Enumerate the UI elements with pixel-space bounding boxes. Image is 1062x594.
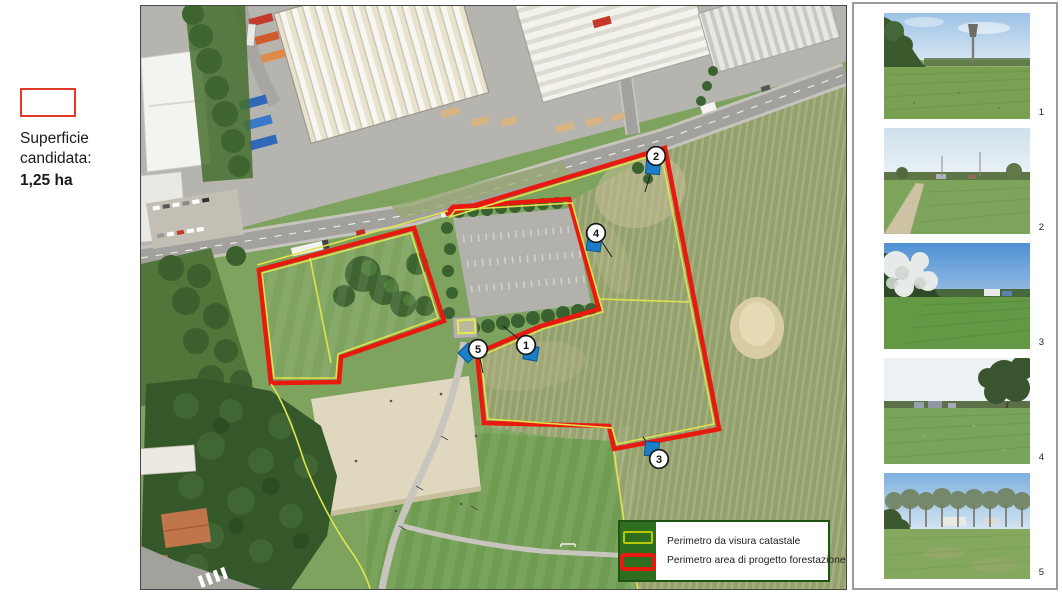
bare-soil-core [739,302,775,346]
marker-number: 4 [593,228,600,240]
slide: Superficie candidata: 1,25 ha [0,0,1062,594]
legend-swatch-panel [620,522,656,580]
photo-1-image [884,13,1030,119]
legend-item-catastale: Perimetro da visura catastale [667,536,846,547]
aerial-imagery: 12345 [141,6,846,589]
photo-3-image [884,243,1030,349]
photo-2-image [884,128,1030,234]
cadastral-box [458,320,476,334]
legend-item-forestazione: Perimetro area di progetto forestazione [667,555,846,566]
photo-4-number: 4 [1039,452,1044,463]
photo-2-number: 2 [1039,222,1044,233]
marker-number: 5 [475,344,481,356]
marker-number: 1 [523,340,529,352]
candidate-area-swatch [20,88,76,117]
legend-labels: Perimetro da visura catastale Perimetro … [656,522,846,580]
annotation-value: 1,25 ha [20,172,135,190]
map-legend: Perimetro da visura catastale Perimetro … [618,520,830,582]
marker-number: 2 [653,151,659,163]
photo-5: 5 [884,473,1030,579]
photo-1-number: 1 [1039,107,1044,118]
parking-lot [453,208,591,318]
photo-5-image [884,473,1030,579]
aerial-map: 12345 Perimetro da visura catastale Peri… [140,5,847,590]
cadastral-swatch [623,531,653,544]
photo-3-number: 3 [1039,337,1044,348]
forestation-swatch [620,553,656,571]
shed [452,316,477,338]
photo-2: 2 [884,128,1030,234]
photo-1: 1 [884,13,1030,119]
marker-number: 3 [656,454,662,466]
area-annotation: Superficie candidata: 1,25 ha [20,88,135,190]
annotation-line1: Superficie [20,129,135,149]
photo-4: 4 [884,358,1030,464]
annotation-line2: candidata: [20,149,135,169]
photo-4-image [884,358,1030,464]
photo-5-number: 5 [1039,567,1044,578]
photo-panel: 1 2 [852,2,1058,590]
photo-3: 3 [884,243,1030,349]
